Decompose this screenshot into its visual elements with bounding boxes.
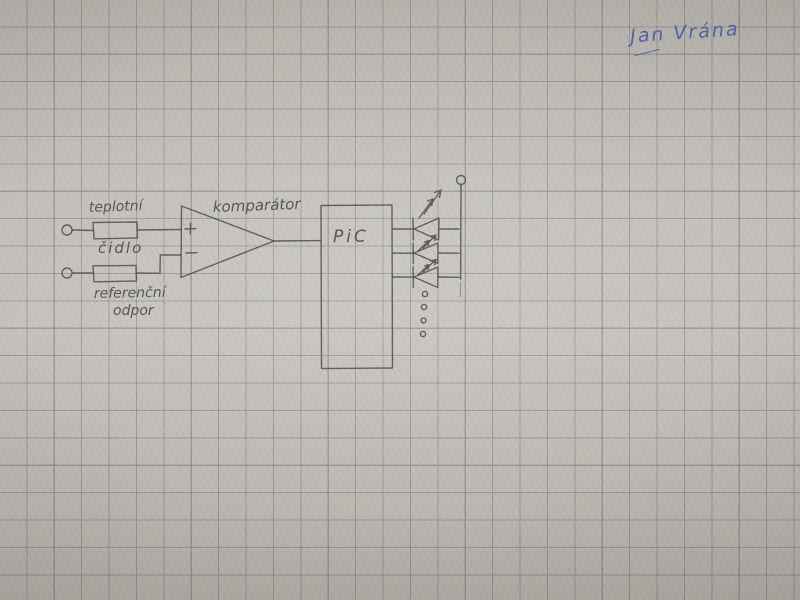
hand-drawn-circuit-schematic: teplotní čidlo referenční odpor komparát… <box>0 0 800 600</box>
label-reference-line1: referenční <box>94 285 168 302</box>
comparator-symbol <box>181 206 321 278</box>
input-terminal-top <box>62 225 93 235</box>
input-terminal-bottom <box>62 268 93 278</box>
more-outputs-dots <box>420 291 427 336</box>
graph-paper-photo: teplotní čidlo referenční odpor komparát… <box>0 0 800 600</box>
label-pic: PiC <box>333 227 369 247</box>
label-sensor-line2: čidlo <box>98 239 143 257</box>
resistor-temperature-sensor <box>93 222 181 239</box>
supply-bus <box>457 176 466 298</box>
label-comparator: komparátor <box>213 195 302 216</box>
led-symbol-3 <box>413 260 459 288</box>
label-sensor-line1: teplotní <box>89 198 145 216</box>
resistor-reference <box>93 255 181 282</box>
led-symbol-1 <box>413 190 459 240</box>
label-reference-line2: odpor <box>113 303 155 319</box>
